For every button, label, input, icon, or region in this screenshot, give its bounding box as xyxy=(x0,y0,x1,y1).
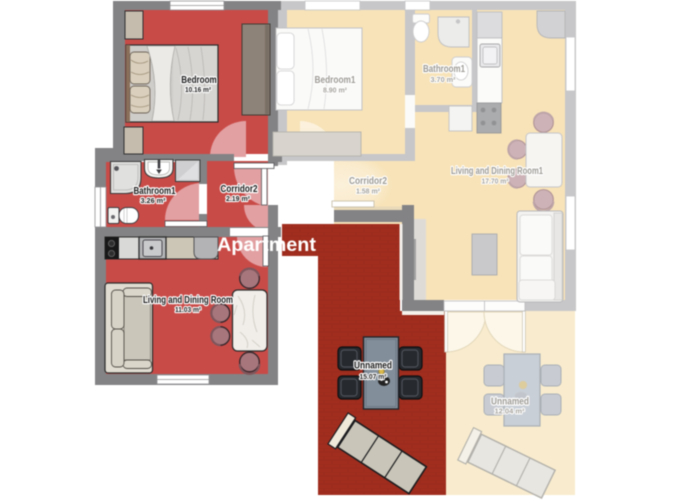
svg-text:1.58 m²: 1.58 m² xyxy=(356,187,381,196)
svg-text:Bedroom1: Bedroom1 xyxy=(315,75,356,86)
svg-text:17.70 m²: 17.70 m² xyxy=(482,177,510,186)
svg-text:3.70 m²: 3.70 m² xyxy=(431,75,457,84)
svg-text:2.19 m²: 2.19 m² xyxy=(226,194,251,203)
svg-text:15.07 m²: 15.07 m² xyxy=(360,372,388,381)
svg-text:Unnamed: Unnamed xyxy=(354,361,392,372)
svg-text:8.90 m²: 8.90 m² xyxy=(323,86,348,95)
svg-text:12.04 m²: 12.04 m² xyxy=(495,407,526,416)
svg-text:3.26 m²: 3.26 m² xyxy=(141,196,167,205)
svg-text:Corridor2: Corridor2 xyxy=(349,176,387,187)
svg-text:Bathroom1: Bathroom1 xyxy=(423,64,465,75)
svg-text:10.16 m²: 10.16 m² xyxy=(185,85,212,94)
svg-text:Living and Dining Room1: Living and Dining Room1 xyxy=(451,166,543,177)
svg-text:Apartment: Apartment xyxy=(217,234,317,256)
svg-text:11.03 m²: 11.03 m² xyxy=(175,305,202,314)
